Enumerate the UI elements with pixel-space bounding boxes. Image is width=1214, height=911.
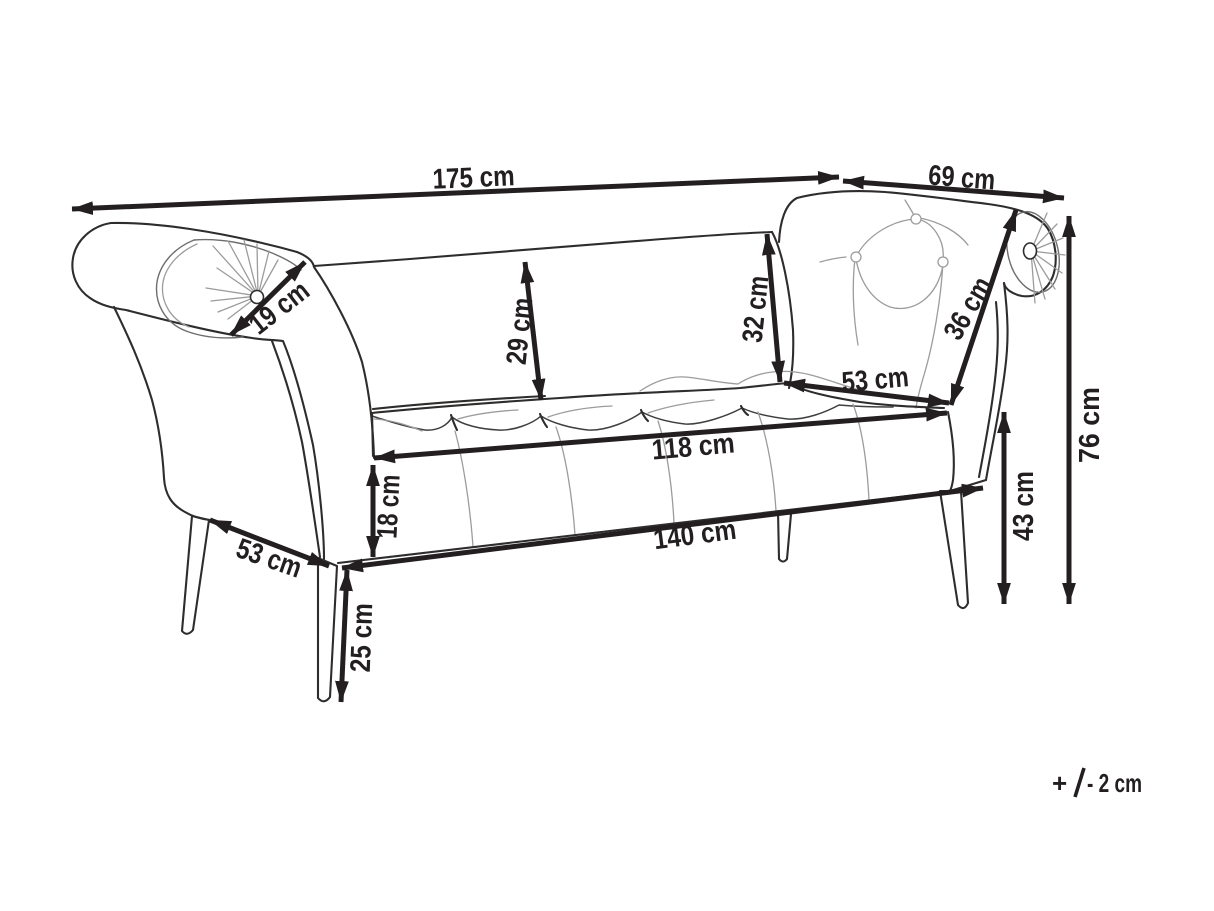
svg-text:18 cm: 18 cm: [371, 474, 406, 540]
svg-text:175 cm: 175 cm: [432, 160, 515, 196]
svg-text:43 cm: 43 cm: [1008, 471, 1040, 541]
svg-text:53 cm: 53 cm: [840, 361, 910, 399]
svg-text:+: +: [1052, 768, 1067, 798]
svg-text:69 cm: 69 cm: [927, 159, 996, 196]
svg-text:25 cm: 25 cm: [345, 603, 379, 673]
svg-text:- 2 cm: - 2 cm: [1087, 768, 1142, 798]
svg-text:76 cm: 76 cm: [1074, 387, 1106, 463]
